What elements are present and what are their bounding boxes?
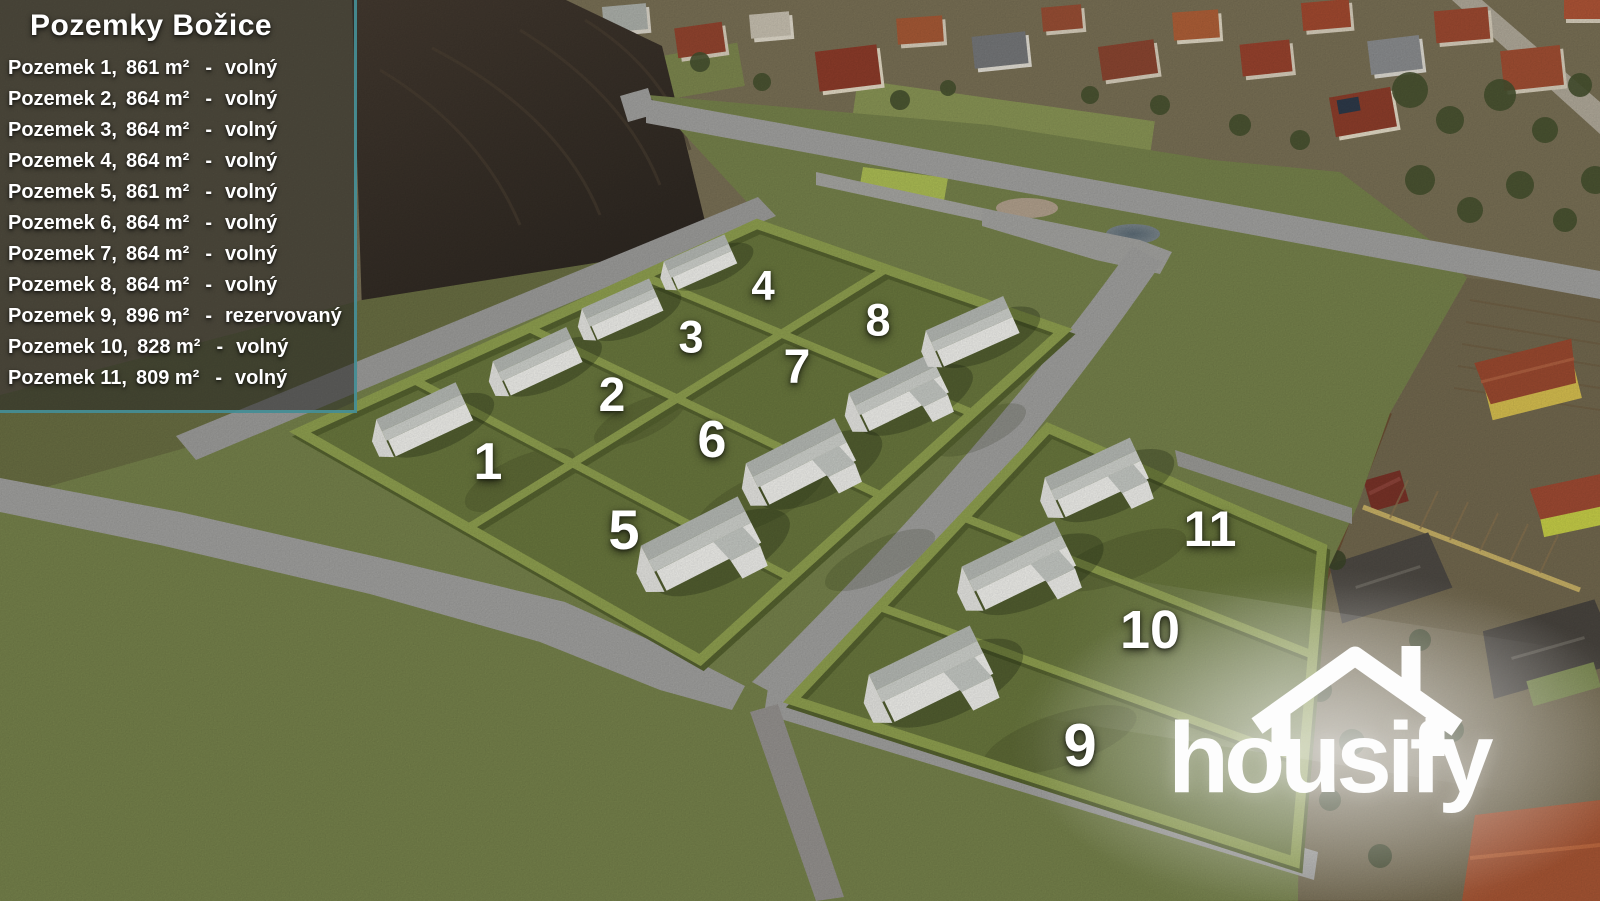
housify-wordmark: housify <box>1168 708 1489 808</box>
legend-panel: Pozemky Božice Pozemek 1,861 m²-volný Po… <box>0 0 357 413</box>
plot-number-4: 4 <box>751 265 774 307</box>
plot-number-5: 5 <box>608 502 639 558</box>
legend-row-2: Pozemek 2,864 m²-volný <box>8 88 354 119</box>
legend-rows: Pozemek 1,861 m²-volný Pozemek 2,864 m²-… <box>0 57 354 398</box>
legend-row-11: Pozemek 11,809 m²-volný <box>8 367 354 398</box>
legend-title: Pozemky Božice <box>30 9 354 43</box>
housify-watermark: housify <box>1146 612 1600 887</box>
plot-number-2: 2 <box>599 372 626 420</box>
plot-number-7: 7 <box>784 344 811 392</box>
plot-number-8: 8 <box>865 298 890 343</box>
plot-number-9: 9 <box>1063 716 1096 776</box>
legend-row-3: Pozemek 3,864 m²-volný <box>8 119 354 150</box>
legend-row-8: Pozemek 8,864 m²-volný <box>8 274 354 305</box>
legend-row-5: Pozemek 5,861 m²-volný <box>8 181 354 212</box>
legend-row-1: Pozemek 1,861 m²-volný <box>8 57 354 88</box>
screenshot-root: 1 2 3 4 5 6 7 8 9 10 11 Pozemky Božice P… <box>0 0 1600 901</box>
legend-row-7: Pozemek 7,864 m²-volný <box>8 243 354 274</box>
plot-number-6: 6 <box>698 414 727 466</box>
plot-number-11: 11 <box>1184 504 1237 554</box>
legend-row-4: Pozemek 4,864 m²-volný <box>8 150 354 181</box>
legend-row-9: Pozemek 9,896 m²-rezervovaný <box>8 305 354 336</box>
legend-row-6: Pozemek 6,864 m²-volný <box>8 212 354 243</box>
plot-number-1: 1 <box>474 436 503 488</box>
legend-row-10: Pozemek 10,828 m²-volný <box>8 336 354 367</box>
plot-number-3: 3 <box>678 315 703 360</box>
